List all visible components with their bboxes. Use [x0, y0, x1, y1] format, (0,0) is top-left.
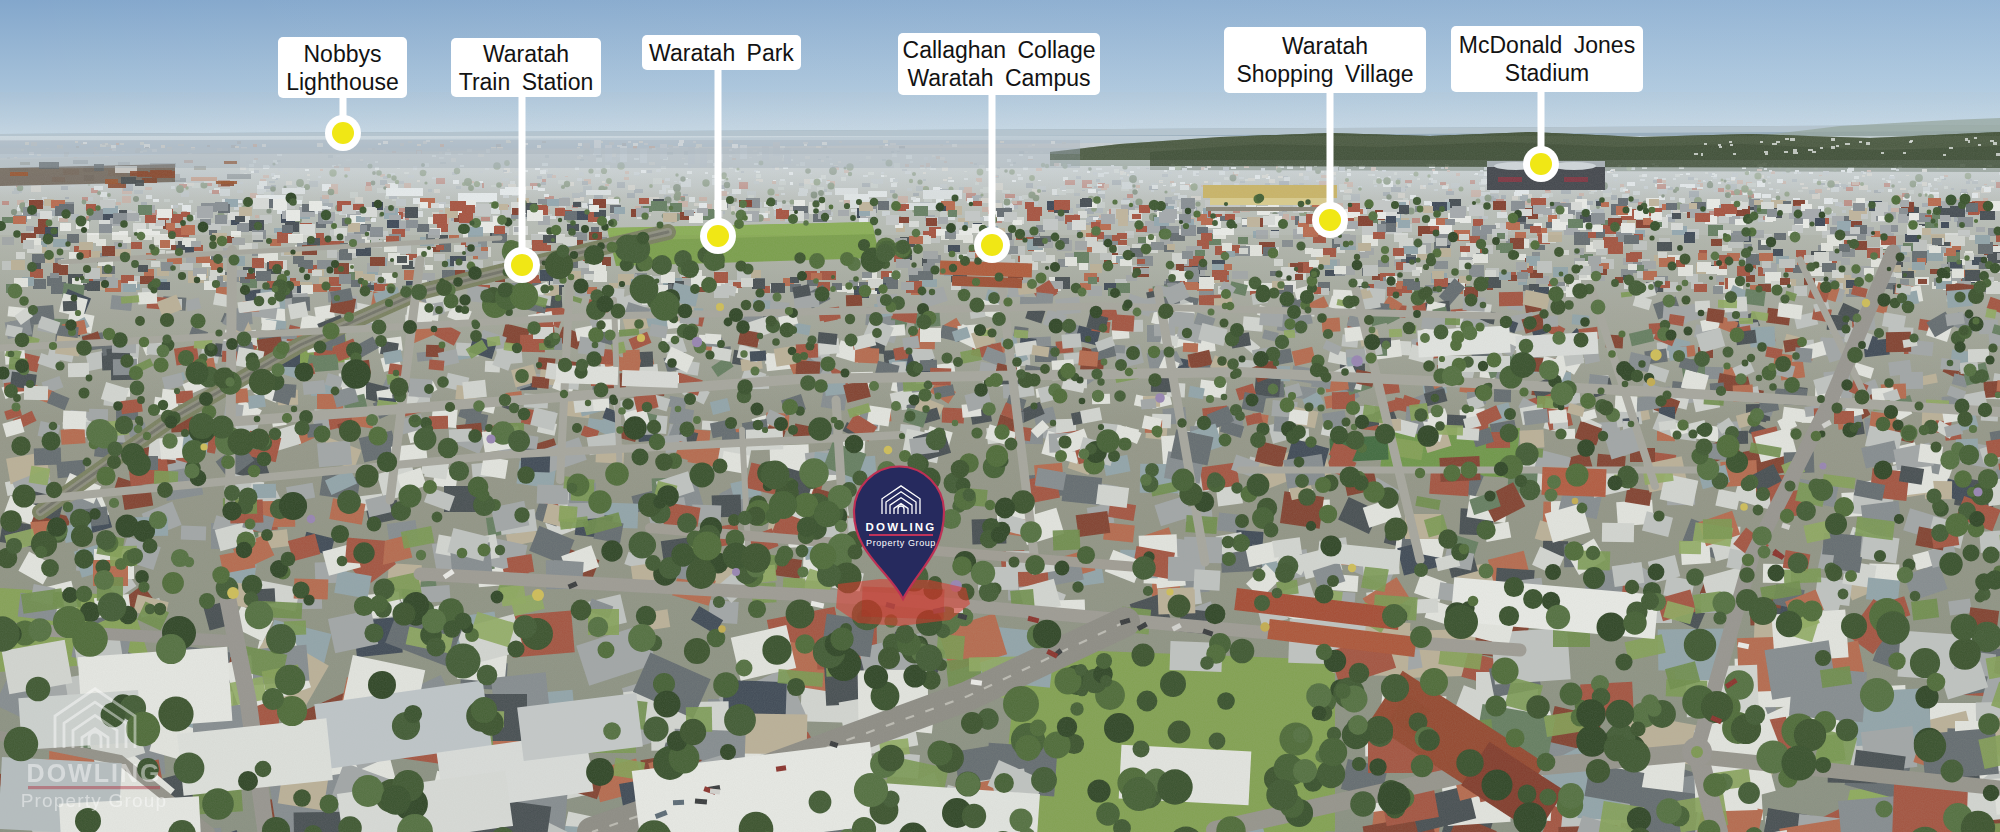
svg-text:Property Group: Property Group: [866, 538, 936, 548]
svg-text:DOWLING: DOWLING: [866, 521, 937, 533]
svg-text:DOWLING: DOWLING: [27, 759, 162, 787]
svg-text:Property Group: Property Group: [21, 790, 168, 811]
